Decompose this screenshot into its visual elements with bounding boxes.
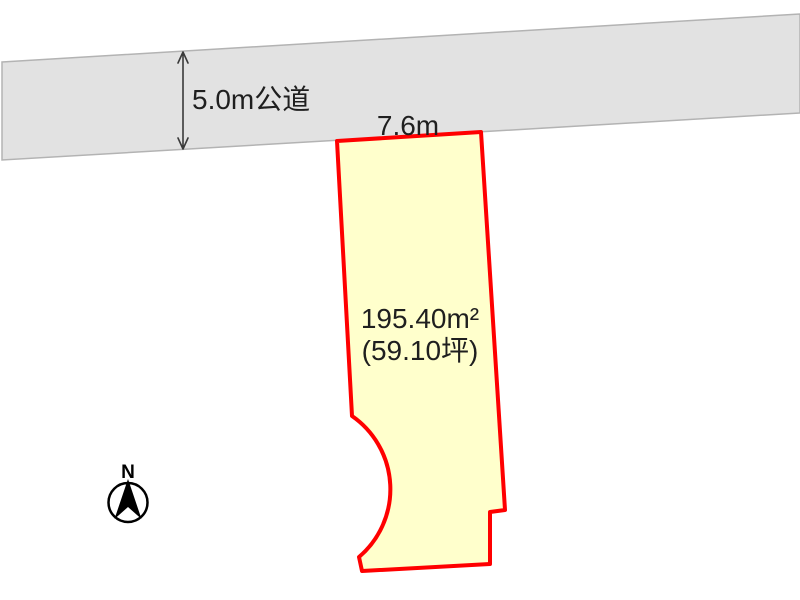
plot-survey-canvas: 5.0m公道 7.6m 195.40m² (59.10坪) N	[0, 0, 800, 600]
north-compass: N	[109, 462, 148, 522]
road-width-label: 5.0m公道	[192, 84, 310, 115]
area-tsubo-label: (59.10坪)	[362, 335, 479, 366]
land-plot-diagram: 5.0m公道 7.6m 195.40m² (59.10坪) N	[0, 0, 800, 600]
area-m2-label: 195.40m²	[361, 303, 479, 334]
frontage-label: 7.6m	[377, 110, 439, 141]
